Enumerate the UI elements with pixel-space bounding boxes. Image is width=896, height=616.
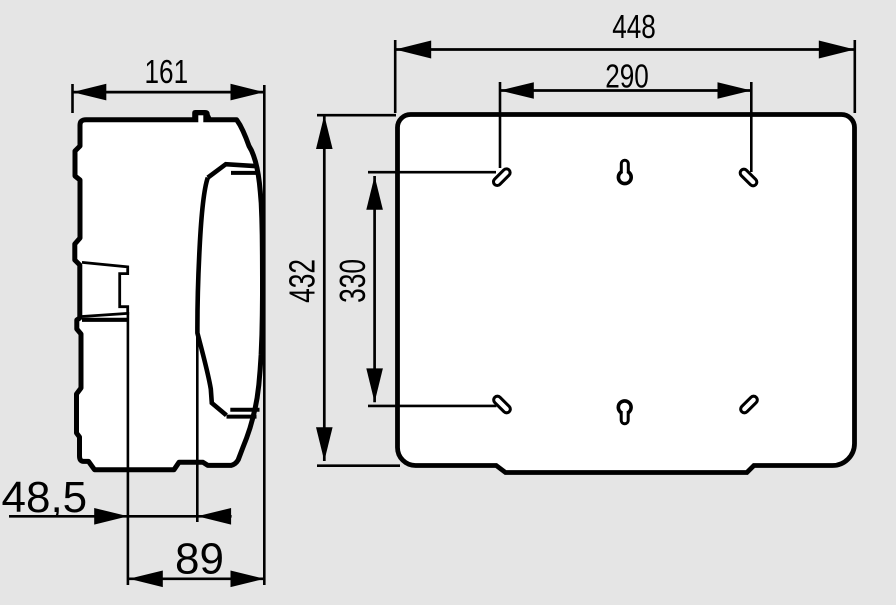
svg-text:290: 290 [605,58,649,95]
svg-text:432: 432 [281,259,322,303]
svg-text:48,5: 48,5 [2,473,88,522]
svg-text:330: 330 [332,259,373,303]
svg-text:161: 161 [145,54,189,91]
svg-text:89: 89 [175,535,224,584]
svg-text:448: 448 [612,9,656,46]
